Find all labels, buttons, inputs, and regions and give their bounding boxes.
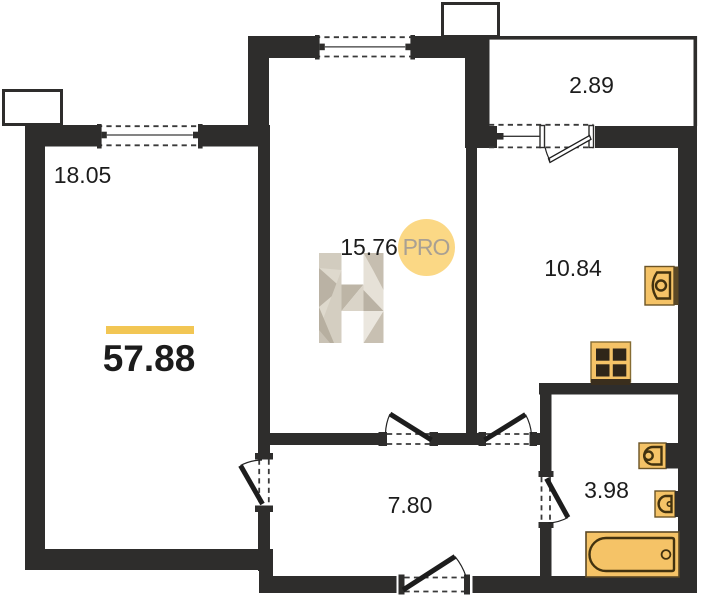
svg-text:PRO: PRO (403, 234, 450, 260)
svg-text:10.84: 10.84 (544, 255, 602, 281)
svg-text:3.98: 3.98 (584, 477, 629, 503)
svg-text:7.80: 7.80 (388, 492, 433, 518)
svg-text:2.89: 2.89 (569, 72, 614, 98)
svg-text:18.05: 18.05 (54, 162, 112, 188)
svg-text:15.76: 15.76 (340, 234, 398, 260)
svg-text:57.88: 57.88 (103, 338, 196, 379)
